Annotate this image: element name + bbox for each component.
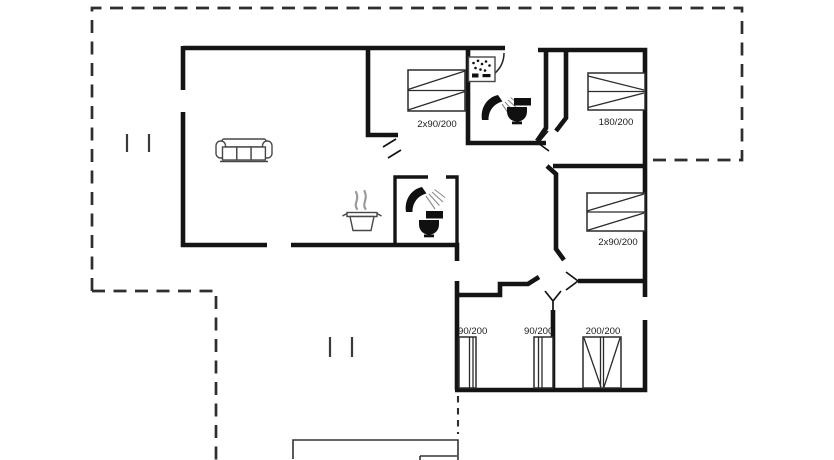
bottom-room-single-bed-left <box>459 337 476 388</box>
bottom-wall-kitchen <box>291 245 457 261</box>
door-swing-mark-icon <box>383 139 401 158</box>
door-swing-mark-icon <box>545 291 561 310</box>
bedroom-top-wall <box>368 48 398 135</box>
bedroom-mid-double-bed <box>587 193 645 231</box>
bedroom-right-left-wall <box>556 50 566 131</box>
cooking-pot-icon <box>343 213 382 231</box>
bed-size-label: 90/200 <box>458 326 487 337</box>
terrace-outline-left-bottom <box>92 291 216 460</box>
hall-step-wall <box>457 277 539 295</box>
washbasin-icon <box>469 57 496 82</box>
bed-size-label: 90/200 <box>524 326 553 337</box>
sofa-icon <box>216 139 272 162</box>
bedroom-right-double-bed <box>588 73 645 110</box>
bed-size-label: 200/200 <box>586 326 621 337</box>
bed-size-label: 180/200 <box>599 117 634 128</box>
bottom-room-double-bed <box>583 337 621 388</box>
bedroom-top-double-bed <box>408 70 465 111</box>
shower-icon <box>406 187 445 212</box>
lower-terrace <box>293 440 458 460</box>
bed-size-label: 2x90/200 <box>417 119 456 130</box>
bed-size-label: 2x90/200 <box>598 237 637 248</box>
bottom-room-single-bed-mid <box>534 337 553 388</box>
bathroom-top-right-wall <box>537 50 546 141</box>
floor-plan-page: 2x90/200 180/200 2x90/200 90/200 90/200 … <box>0 0 834 460</box>
steam-icon <box>356 191 366 209</box>
toilet-icon <box>419 211 443 237</box>
floor-plan: 2x90/200 180/200 2x90/200 90/200 90/200 … <box>0 0 834 460</box>
door-swing-mark-icon <box>566 272 578 290</box>
left-wall-lower <box>183 112 267 245</box>
bedroom-mid-left-wall <box>547 166 564 260</box>
